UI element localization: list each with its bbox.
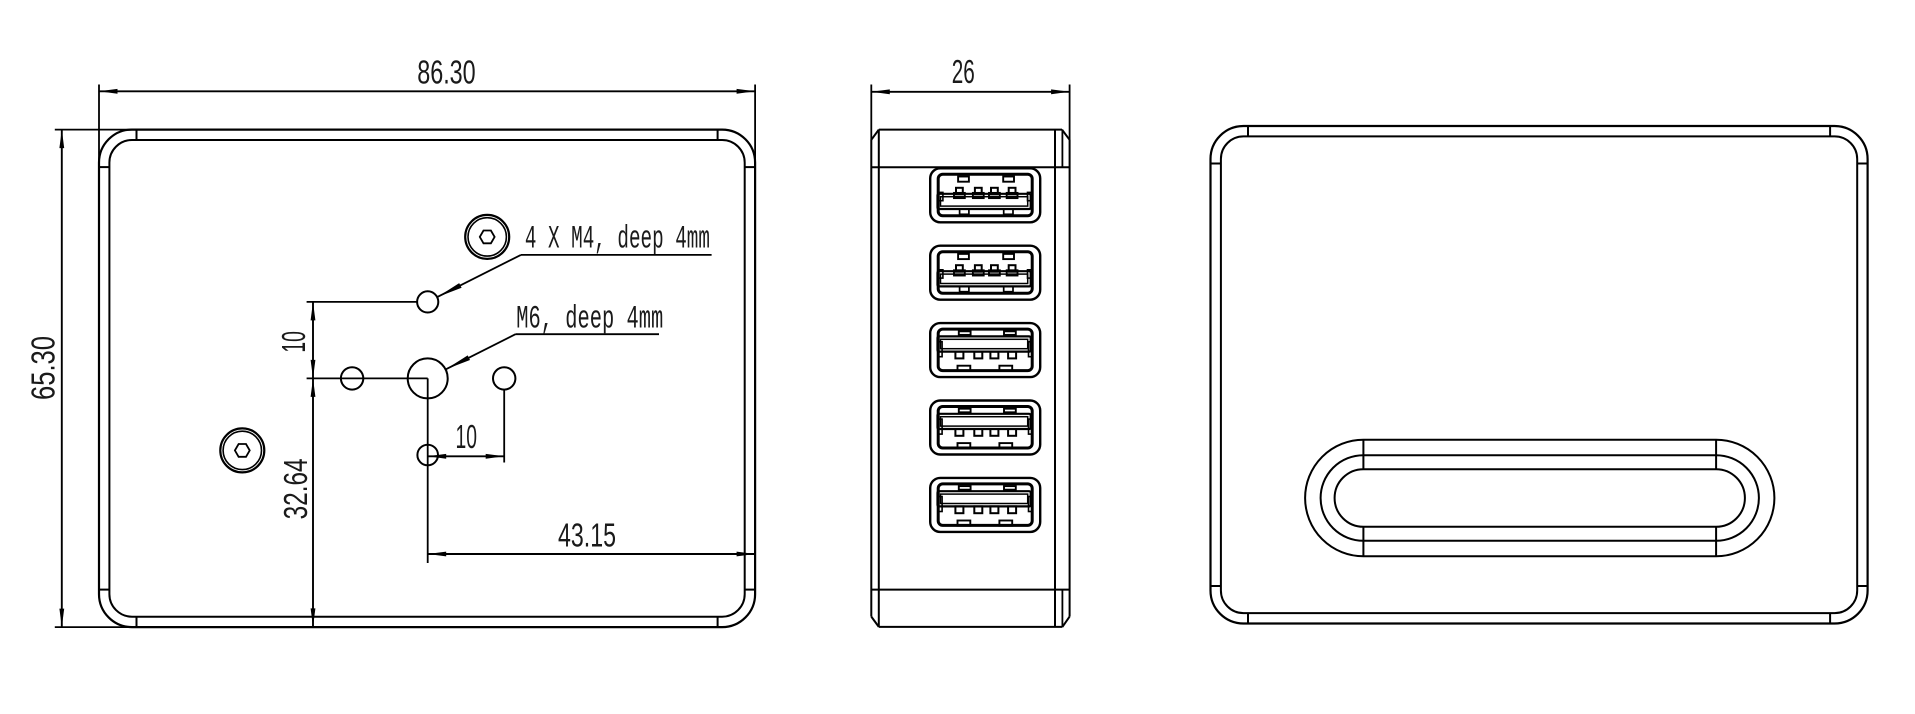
svg-text:26: 26 [952,53,975,90]
svg-text:43.15: 43.15 [558,516,616,553]
svg-text:10: 10 [275,331,312,353]
svg-text:M6, deep 4mm: M6, deep 4mm [516,300,663,337]
svg-text:65.30: 65.30 [25,336,62,400]
svg-text:10: 10 [456,418,478,455]
svg-text:4 X M4, deep 4mm: 4 X M4, deep 4mm [525,220,710,257]
svg-text:32.64: 32.64 [277,458,314,519]
svg-text:86.30: 86.30 [417,54,476,91]
